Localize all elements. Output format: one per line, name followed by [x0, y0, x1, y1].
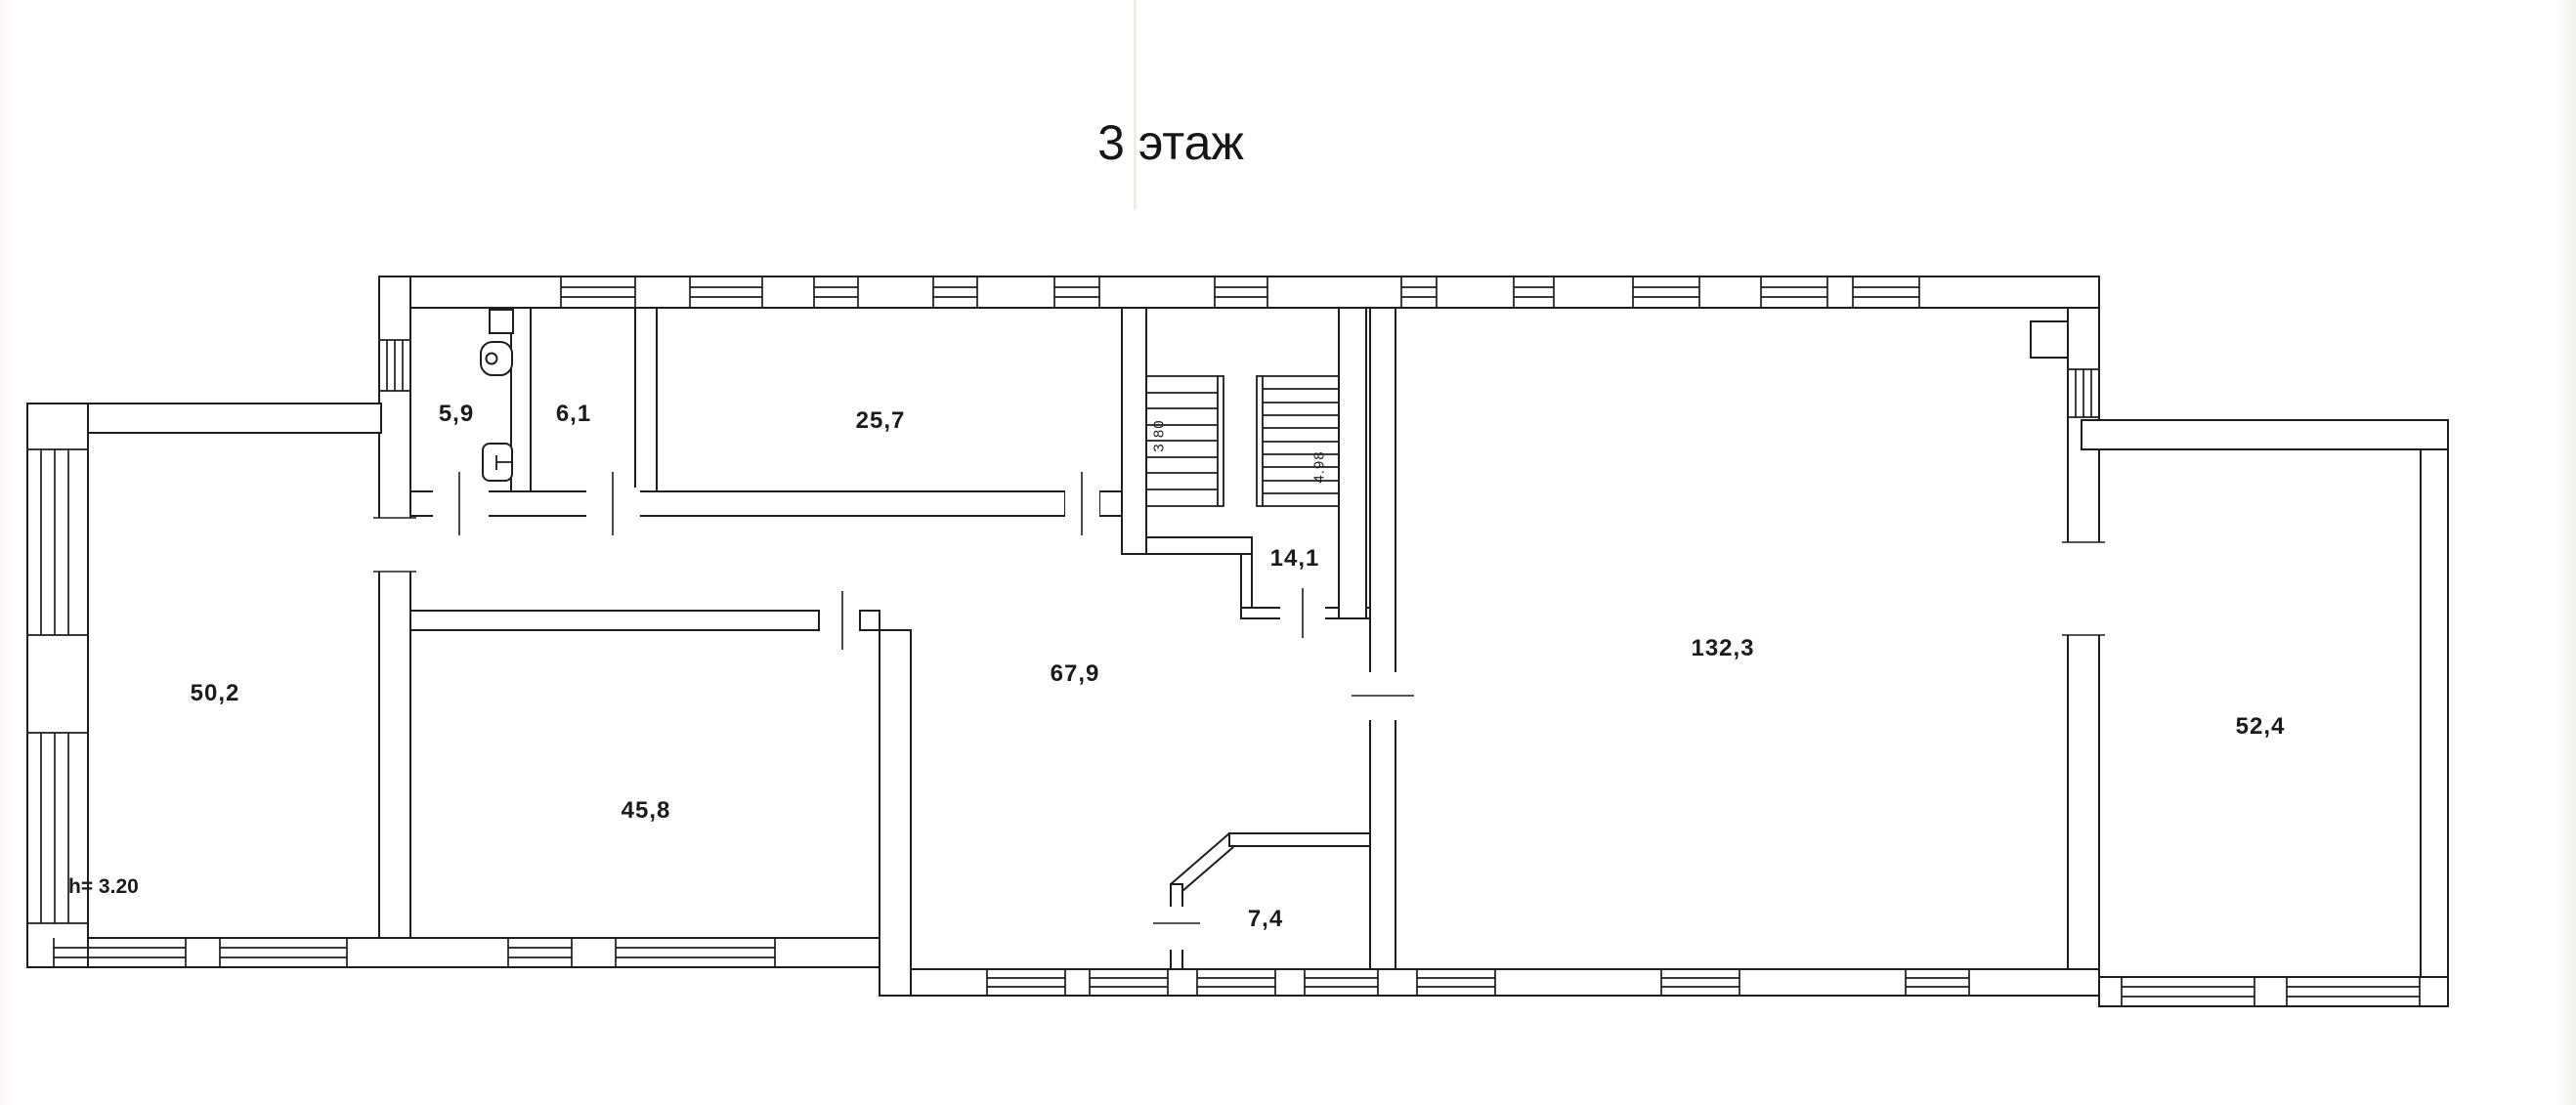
- wall-duct-notch: [490, 310, 513, 333]
- chamfer-7-4: [1171, 833, 1233, 891]
- wall-right-wing-bottom: [2099, 977, 2448, 1006]
- height-note: h= 3.20: [68, 875, 139, 899]
- room-area-label-132-3: 132,3: [1691, 635, 1754, 662]
- wall-45-8-door-post: [860, 611, 880, 630]
- stair-stringer-right: [1257, 376, 1263, 506]
- wc-fixtures: [481, 342, 512, 481]
- wall-stair-right: [1339, 308, 1366, 618]
- room-area-label-52-4: 52,4: [2236, 713, 2286, 741]
- wall-stair-left: [1122, 308, 1146, 554]
- room-area-label-25-7: 25,7: [856, 407, 906, 435]
- room-area-label-45-8: 45,8: [622, 797, 671, 825]
- wall-partition-6-1: [635, 308, 657, 491]
- floor-title: 3 этаж: [1097, 114, 1244, 171]
- wall-bottom-right-band: [881, 969, 2099, 996]
- staircase: [1146, 376, 1339, 506]
- wall-bottom-left-band: [27, 938, 881, 967]
- wall-7-4-top: [1229, 833, 1370, 846]
- wall-45-8-top: [410, 611, 819, 630]
- stair-stringer-left: [1218, 376, 1224, 506]
- room-area-label-5-9: 5,9: [439, 401, 474, 428]
- wall-central-divider: [1370, 308, 1395, 969]
- wall-right-stub: [2031, 321, 2068, 358]
- wall-partition-wc: [511, 308, 531, 491]
- room-area-label-67-9: 67,9: [1051, 660, 1100, 688]
- wall-45-8-right: [880, 630, 911, 996]
- wall-top-rooms-bottom-b: [1099, 491, 1122, 516]
- scanned-floor-plan-page: 3 этаж 5,9 6,1 25,7 14,1 67,9 45,8 7,4 1…: [0, 0, 2576, 1105]
- stair-treads-right-flight: [1263, 376, 1339, 506]
- stair-flight-dim-a: 3.80: [1151, 419, 1168, 451]
- wall-top-rooms-bottom-a: [410, 491, 1065, 516]
- wall-stair-landing: [1146, 537, 1252, 554]
- wall-right-wing-right: [2421, 449, 2448, 977]
- walls: [27, 276, 2448, 1006]
- door-openings: [376, 488, 2102, 950]
- stair-flight-dim-b: 4.98: [1311, 450, 1328, 483]
- wall-right-wing-top: [2082, 420, 2448, 449]
- room-area-label-50-2: 50,2: [191, 680, 240, 707]
- room-area-label-14-1: 14,1: [1270, 545, 1320, 573]
- room-area-label-7-4: 7,4: [1248, 906, 1283, 933]
- room-area-label-6-1: 6,1: [556, 401, 591, 428]
- wall-top-main: [379, 276, 2099, 308]
